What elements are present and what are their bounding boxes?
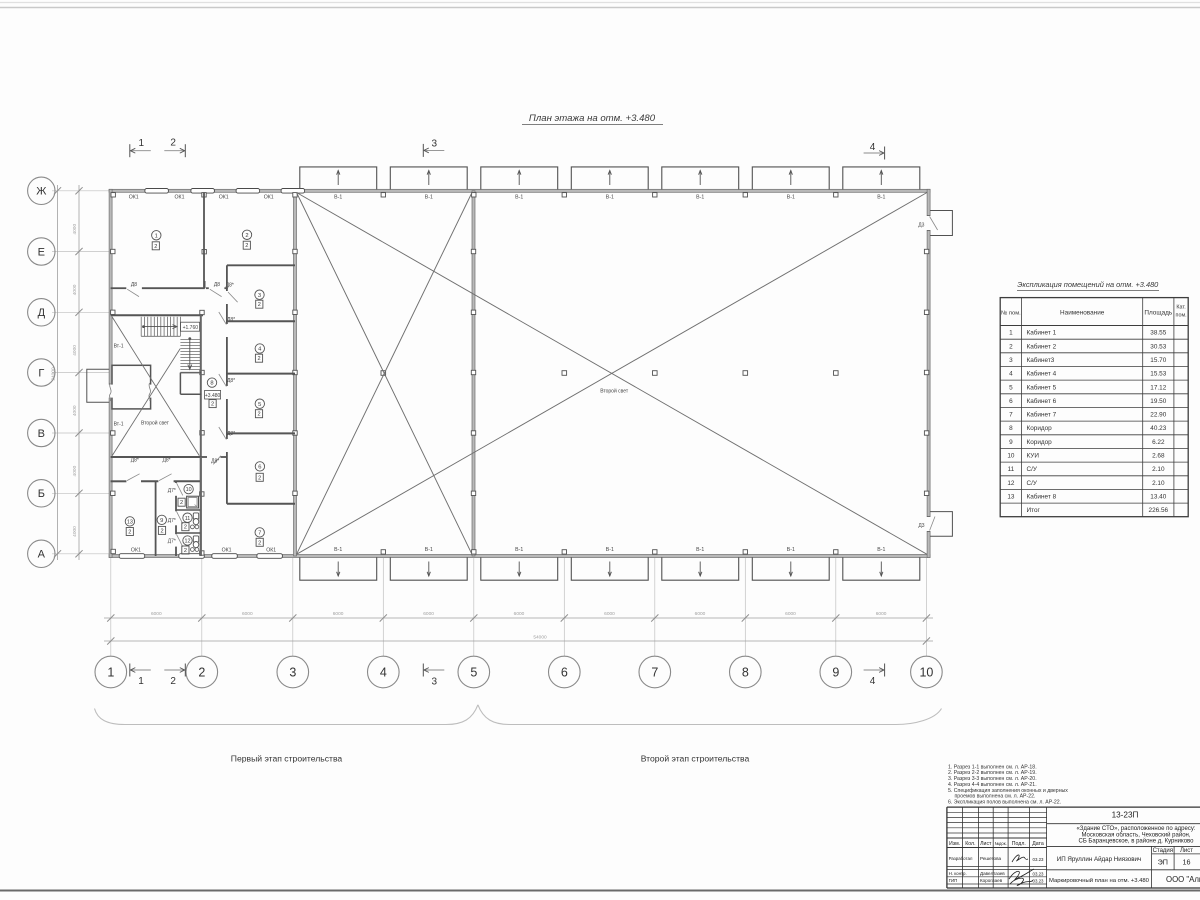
- svg-text:Кабинет 5: Кабинет 5: [1027, 383, 1057, 391]
- svg-text:2: 2: [170, 137, 176, 148]
- svg-text:1: 1: [139, 138, 145, 149]
- svg-text:Короглаев: Короглаев: [980, 878, 1003, 883]
- svg-text:4: 4: [380, 665, 387, 679]
- svg-text:Д7*: Д7*: [168, 488, 176, 494]
- svg-text:2: 2: [1009, 343, 1013, 350]
- svg-text:План этажа на отм. +3.480: План этажа на отм. +3.480: [529, 113, 656, 124]
- svg-text:10: 10: [919, 665, 933, 679]
- svg-text:С/У: С/У: [1027, 480, 1038, 487]
- svg-text:2: 2: [154, 244, 157, 250]
- svg-text:2: 2: [257, 356, 260, 362]
- svg-text:Вт-1: Вт-1: [114, 343, 124, 349]
- svg-text:12: 12: [185, 539, 191, 545]
- svg-text:2: 2: [184, 548, 187, 554]
- svg-text:2: 2: [245, 233, 248, 239]
- svg-text:38.55: 38.55: [1150, 330, 1166, 337]
- svg-text:03.23: 03.23: [1033, 879, 1045, 884]
- svg-text:№док.: №док.: [994, 841, 1006, 846]
- svg-text:Д7*: Д7*: [168, 518, 176, 524]
- svg-text:Кабинет3: Кабинет3: [1027, 356, 1055, 364]
- svg-text:4: 4: [1009, 371, 1013, 378]
- svg-text:4: 4: [870, 142, 876, 153]
- svg-text:Кабинет 1: Кабинет 1: [1027, 329, 1057, 337]
- svg-text:В-1: В-1: [787, 547, 795, 553]
- svg-text:4000: 4000: [72, 405, 78, 416]
- svg-text:В-1: В-1: [787, 195, 795, 201]
- svg-text:2.10: 2.10: [1152, 480, 1165, 487]
- svg-text:В-1: В-1: [515, 195, 523, 201]
- svg-text:ОК1: ОК1: [264, 195, 274, 201]
- svg-text:03.23: 03.23: [1033, 857, 1045, 862]
- svg-text:4000: 4000: [72, 284, 78, 295]
- svg-text:В-1: В-1: [606, 195, 614, 201]
- svg-text:Второй свет: Второй свет: [141, 419, 170, 426]
- svg-text:1: 1: [107, 665, 114, 679]
- svg-text:Маркировочный план на отм. +3.: Маркировочный план на отм. +3.480: [1049, 877, 1150, 884]
- svg-text:Кол.: Кол.: [965, 841, 975, 847]
- svg-text:2: 2: [257, 412, 260, 418]
- svg-text:Кат.: Кат.: [1176, 305, 1185, 311]
- svg-text:Лист: Лист: [1180, 848, 1193, 854]
- svg-text:9: 9: [1009, 439, 1013, 446]
- svg-text:9: 9: [160, 518, 163, 524]
- svg-text:ИП Яруллин Айдар Ниязович: ИП Яруллин Айдар Ниязович: [1057, 856, 1141, 863]
- svg-text:3: 3: [432, 138, 438, 149]
- svg-text:Кабинет 4: Кабинет 4: [1027, 370, 1057, 378]
- svg-text:ОК1: ОК1: [131, 548, 141, 554]
- svg-text:15.53: 15.53: [1150, 371, 1166, 378]
- svg-text:1: 1: [1009, 330, 1013, 337]
- svg-text:Д8*: Д8*: [227, 378, 235, 384]
- svg-text:В-1: В-1: [515, 547, 523, 553]
- svg-text:Дата: Дата: [1032, 841, 1044, 847]
- svg-text:СБ Баранцевское, в районе д. К: СБ Баранцевское, в районе д. Курниково: [1078, 838, 1194, 845]
- svg-text:Д8: Д8: [214, 282, 220, 288]
- svg-text:8: 8: [742, 665, 749, 679]
- svg-text:19.50: 19.50: [1150, 398, 1166, 405]
- svg-text:226.56: 226.56: [1149, 507, 1169, 514]
- svg-text:8: 8: [210, 381, 213, 387]
- svg-text:Д7*: Д7*: [168, 539, 176, 545]
- svg-text:13: 13: [127, 520, 133, 526]
- svg-text:11: 11: [1008, 466, 1015, 473]
- svg-text:4000: 4000: [72, 465, 78, 476]
- svg-text:Д8: Д8: [131, 282, 137, 288]
- svg-text:6000: 6000: [333, 611, 344, 617]
- svg-text:40.23: 40.23: [1150, 425, 1166, 432]
- svg-text:Изм.: Изм.: [949, 841, 960, 847]
- svg-text:пом.: пом.: [1176, 313, 1187, 319]
- svg-text:В: В: [38, 428, 45, 440]
- svg-text:Первый этап строительства: Первый этап строительства: [231, 754, 343, 764]
- svg-text:В-1: В-1: [334, 195, 342, 201]
- svg-text:ОК1: ОК1: [219, 195, 229, 201]
- svg-text:5: 5: [470, 665, 477, 679]
- svg-text:В-1: В-1: [696, 547, 704, 553]
- svg-text:3: 3: [432, 677, 438, 688]
- svg-text:ОК1: ОК1: [129, 195, 139, 201]
- svg-text:4000: 4000: [72, 526, 78, 537]
- svg-text:2.68: 2.68: [1152, 453, 1165, 460]
- svg-text:ГИП: ГИП: [949, 878, 958, 883]
- svg-text:ОК1: ОК1: [266, 548, 276, 554]
- svg-text:12: 12: [1007, 480, 1015, 487]
- svg-text:Ж: Ж: [36, 186, 46, 198]
- svg-text:3: 3: [258, 293, 261, 299]
- svg-text:3: 3: [1009, 357, 1013, 364]
- svg-text:Экспликация помещений на отм.: Экспликация помещений на отм. +3.480: [1017, 280, 1159, 289]
- svg-text:1: 1: [138, 676, 144, 687]
- svg-text:16: 16: [1183, 858, 1191, 867]
- svg-text:Коридор: Коридор: [1027, 439, 1053, 446]
- svg-text:7: 7: [1009, 412, 1013, 419]
- svg-text:2: 2: [180, 500, 183, 506]
- svg-text:2: 2: [170, 676, 176, 687]
- svg-text:6: 6: [258, 465, 261, 471]
- svg-text:ОК1: ОК1: [175, 195, 185, 201]
- svg-text:6. Экспликация полов выполнена: 6. Экспликация полов выполнена см. л. АР…: [948, 800, 1061, 806]
- svg-text:7: 7: [651, 665, 658, 679]
- svg-text:Е: Е: [38, 246, 45, 258]
- svg-text:ЭП: ЭП: [1158, 858, 1168, 867]
- svg-text:+3.480: +3.480: [205, 393, 221, 399]
- svg-text:Стадия: Стадия: [1153, 848, 1173, 854]
- svg-text:Площадь: Площадь: [1144, 310, 1172, 317]
- svg-text:54000: 54000: [533, 634, 547, 640]
- svg-text:+1.760: +1.760: [183, 325, 199, 331]
- svg-text:Второй свет: Второй свет: [600, 388, 629, 395]
- svg-text:2: 2: [198, 665, 205, 679]
- svg-text:6: 6: [1009, 398, 1013, 405]
- svg-text:6000: 6000: [695, 611, 706, 617]
- svg-text:2: 2: [128, 530, 131, 536]
- svg-text:Г: Г: [38, 367, 44, 379]
- svg-text:6000: 6000: [423, 611, 434, 617]
- svg-text:2: 2: [258, 540, 261, 546]
- svg-text:6000: 6000: [785, 611, 796, 617]
- svg-text:3: 3: [289, 665, 296, 679]
- svg-text:5: 5: [1009, 384, 1013, 391]
- svg-text:2.10: 2.10: [1152, 466, 1165, 473]
- svg-text:6000: 6000: [514, 611, 525, 617]
- svg-text:Кабинет 7: Кабинет 7: [1027, 411, 1057, 419]
- svg-text:Разработал: Разработал: [949, 856, 973, 861]
- svg-text:6: 6: [561, 665, 568, 679]
- svg-text:11: 11: [185, 516, 191, 522]
- svg-text:«Здание СТО», расположенное по: «Здание СТО», расположенное по адресу:: [1076, 826, 1195, 832]
- svg-text:Д8*: Д8*: [162, 458, 170, 464]
- svg-text:Кабинет 2: Кабинет 2: [1027, 342, 1057, 350]
- svg-text:В-1: В-1: [425, 195, 433, 201]
- svg-text:6000: 6000: [604, 611, 615, 617]
- svg-text:Д3: Д3: [918, 223, 924, 229]
- svg-text:В-1: В-1: [425, 547, 433, 553]
- svg-text:7: 7: [258, 531, 261, 537]
- svg-text:Д: Д: [38, 307, 46, 319]
- svg-text:Подл.: Подл.: [1012, 841, 1026, 847]
- svg-text:Итог: Итог: [1027, 507, 1041, 514]
- svg-text:Д8*: Д8*: [131, 458, 139, 464]
- svg-text:5: 5: [258, 402, 261, 408]
- svg-text:В-1: В-1: [696, 195, 704, 201]
- svg-text:Коридор: Коридор: [1027, 425, 1053, 432]
- svg-text:4000: 4000: [72, 345, 78, 356]
- svg-text:Второй этап строительства: Второй этап строительства: [641, 754, 750, 764]
- svg-text:22.90: 22.90: [1150, 412, 1166, 419]
- svg-text:Давелтазев: Давелтазев: [980, 871, 1005, 876]
- svg-text:4000: 4000: [72, 224, 78, 235]
- svg-text:8: 8: [1009, 425, 1013, 432]
- svg-text:ОК1: ОК1: [222, 548, 232, 554]
- svg-text:А: А: [38, 549, 46, 561]
- svg-text:03.23: 03.23: [1033, 871, 1045, 876]
- svg-text:2: 2: [258, 475, 261, 481]
- svg-text:2: 2: [211, 402, 214, 408]
- svg-text:2: 2: [184, 525, 187, 531]
- svg-text:2: 2: [160, 528, 163, 534]
- svg-text:Кабинет 6: Кабинет 6: [1027, 397, 1057, 405]
- svg-text:С/У: С/У: [1027, 466, 1038, 473]
- svg-text:КУИ: КУИ: [1027, 453, 1040, 460]
- svg-text:В-1: В-1: [606, 547, 614, 553]
- svg-text:6000: 6000: [876, 611, 887, 617]
- svg-text:Московская область, Чеховский: Московская область, Чеховский район,: [1081, 831, 1190, 838]
- svg-text:Д8*: Д8*: [211, 458, 219, 464]
- svg-text:13-23П: 13-23П: [1112, 811, 1139, 820]
- svg-text:6.22: 6.22: [1152, 439, 1165, 446]
- svg-text:13: 13: [1007, 494, 1015, 501]
- svg-text:В-1: В-1: [877, 547, 885, 553]
- svg-text:№ пом.: № пом.: [1001, 311, 1021, 317]
- svg-text:2: 2: [258, 302, 261, 308]
- svg-text:2: 2: [245, 243, 248, 249]
- svg-text:Б: Б: [38, 488, 45, 500]
- svg-text:30.53: 30.53: [1150, 343, 1166, 350]
- svg-text:ООО "Альф: ООО "Альф: [1166, 875, 1200, 884]
- svg-text:В-1: В-1: [334, 547, 342, 553]
- svg-text:Вт-1: Вт-1: [114, 421, 124, 427]
- svg-text:Лист: Лист: [980, 841, 992, 847]
- svg-text:6000: 6000: [151, 611, 162, 617]
- svg-text:Наименование: Наименование: [1060, 310, 1105, 317]
- svg-text:10: 10: [186, 487, 192, 493]
- svg-text:9: 9: [832, 665, 839, 679]
- svg-text:В-1: В-1: [877, 195, 885, 201]
- svg-text:Д3: Д3: [918, 523, 924, 529]
- svg-text:Решетова: Решетова: [980, 856, 1002, 861]
- svg-text:6000: 6000: [242, 611, 253, 617]
- svg-text:Кабинет 8: Кабинет 8: [1027, 493, 1057, 501]
- svg-text:Н. контр.: Н. контр.: [949, 871, 967, 876]
- svg-text:4: 4: [870, 676, 876, 687]
- svg-text:13.40: 13.40: [1150, 494, 1166, 501]
- svg-text:17.12: 17.12: [1150, 384, 1166, 391]
- svg-text:1: 1: [155, 233, 158, 239]
- svg-text:10: 10: [1007, 453, 1015, 460]
- svg-text:15.70: 15.70: [1150, 357, 1166, 364]
